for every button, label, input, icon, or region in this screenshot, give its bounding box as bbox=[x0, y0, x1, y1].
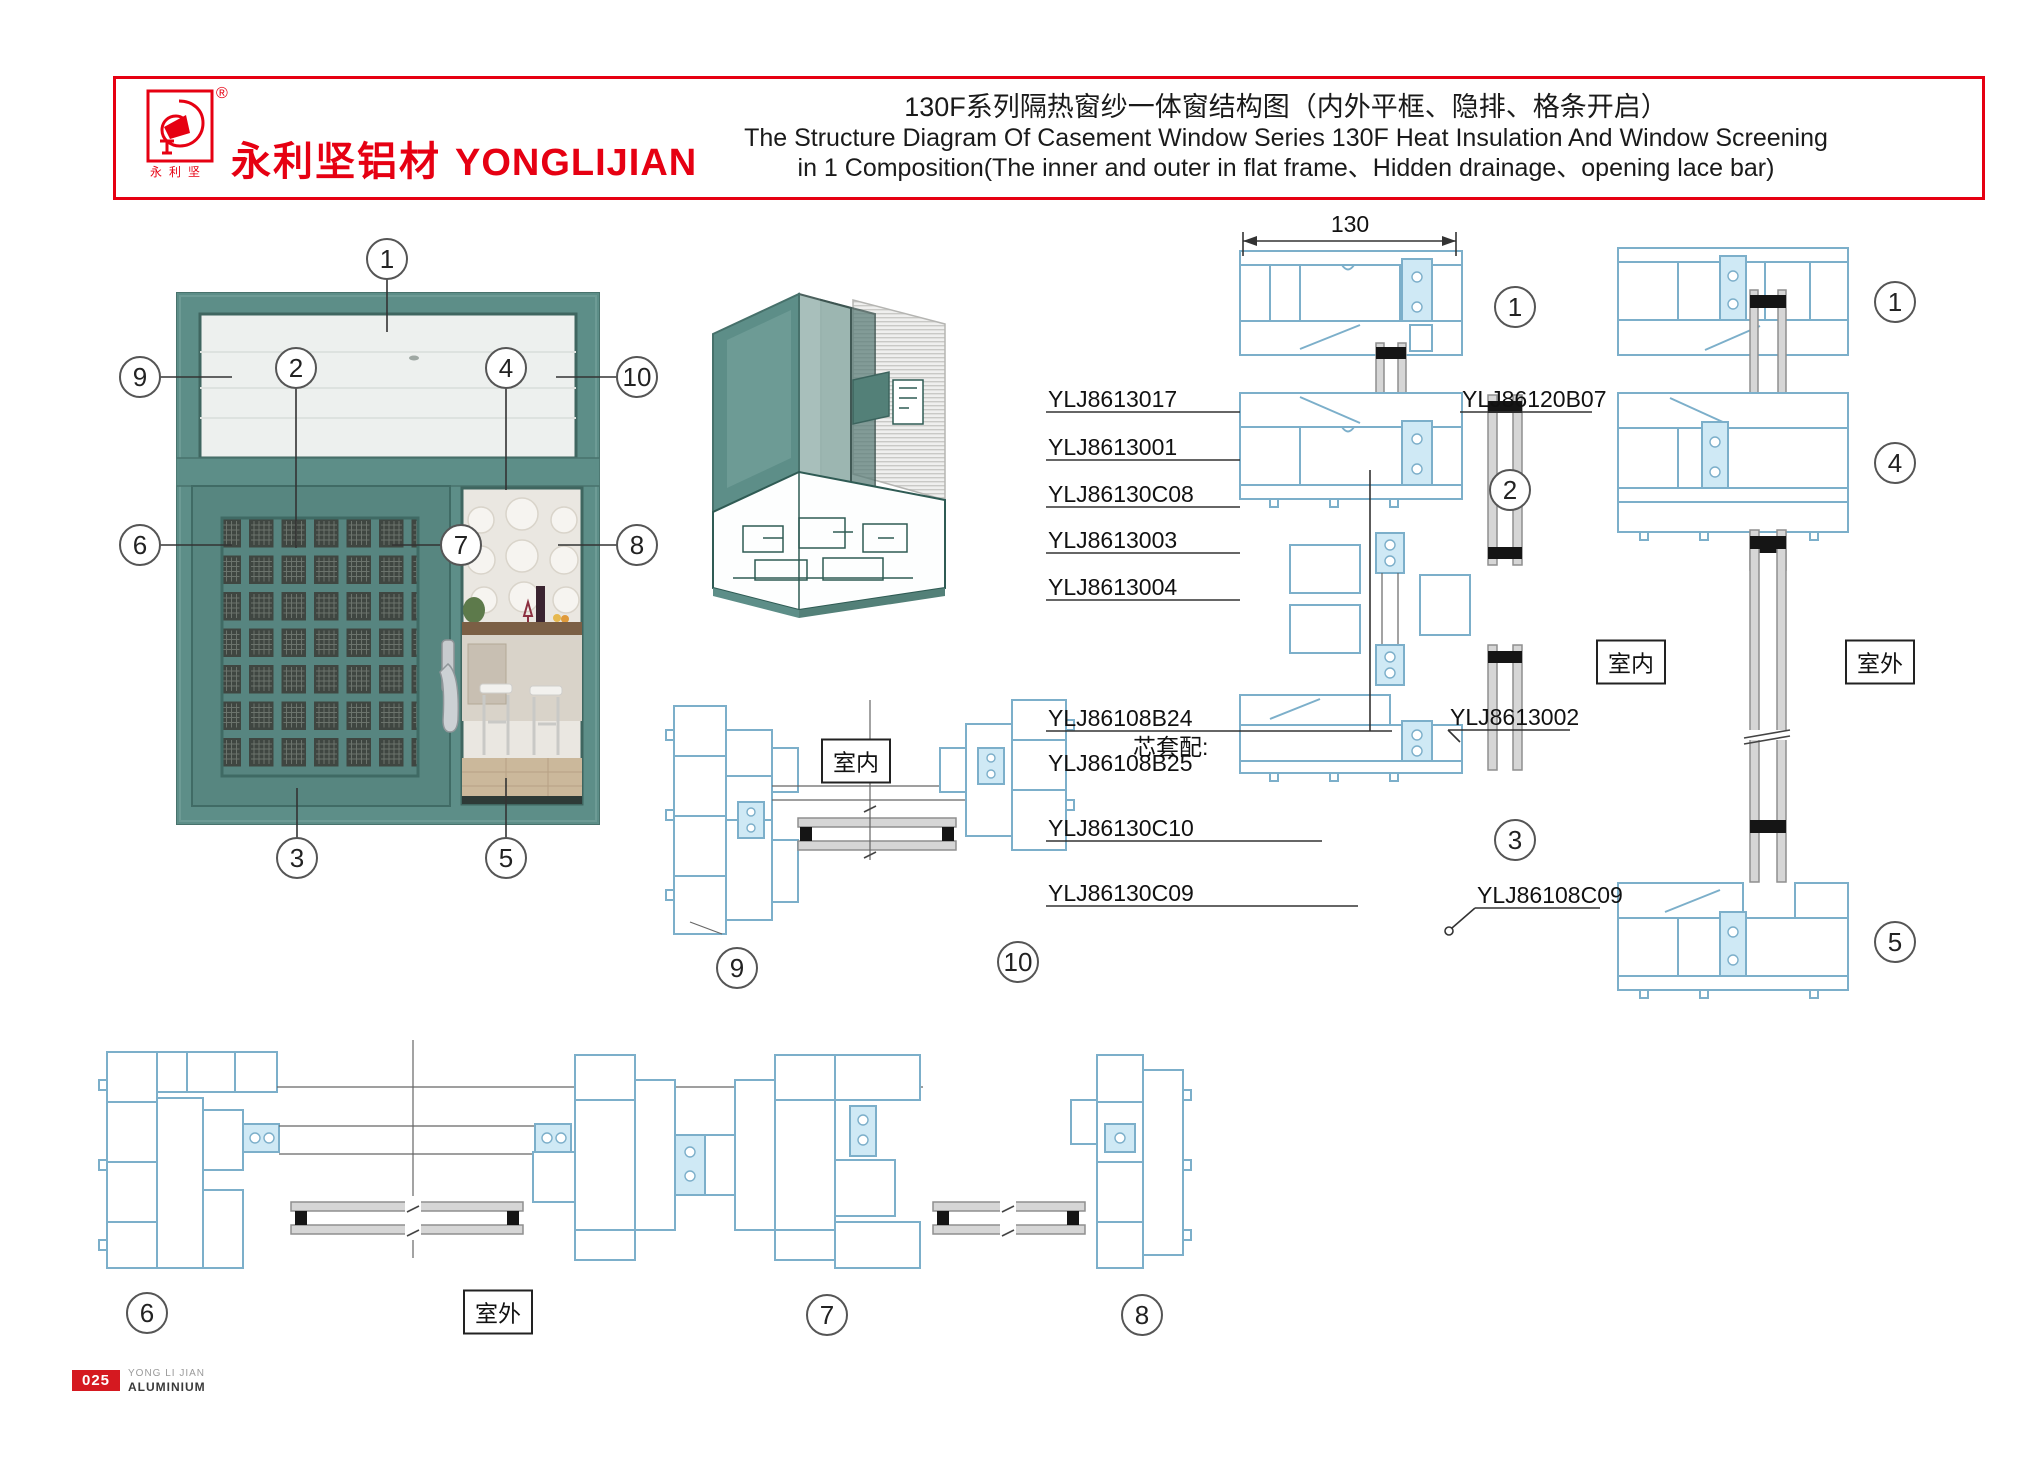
callout-section-3: 3 bbox=[1494, 819, 1536, 861]
part-label-ylj86120b07: YLJ86120B07 bbox=[1462, 386, 1607, 413]
part-label-ylj86108c09: YLJ86108C09 bbox=[1477, 882, 1623, 909]
callout-window-5: 5 bbox=[485, 837, 527, 879]
callout-window-2: 2 bbox=[275, 347, 317, 389]
callout-section-1-mid: 1 bbox=[1494, 286, 1536, 328]
callout-window-1: 1 bbox=[366, 238, 408, 280]
callout-number: 2 bbox=[289, 355, 303, 381]
callout-number: 6 bbox=[133, 532, 147, 558]
callout-window-10: 10 bbox=[616, 356, 658, 398]
room-label-indoor-right: 室内 bbox=[1596, 640, 1666, 685]
callout-section-10: 10 bbox=[997, 941, 1039, 983]
callout-section-5: 5 bbox=[1874, 921, 1916, 963]
callout-window-8: 8 bbox=[616, 524, 658, 566]
callout-window-4: 4 bbox=[485, 347, 527, 389]
callout-number: 10 bbox=[1004, 949, 1033, 975]
callout-number: 2 bbox=[1503, 477, 1517, 503]
callout-section-4: 4 bbox=[1874, 442, 1916, 484]
callout-number: 3 bbox=[1508, 827, 1522, 853]
callout-section-1-right: 1 bbox=[1874, 281, 1916, 323]
part-label-ylj86130c09: YLJ86130C09 bbox=[1048, 880, 1194, 907]
callout-number: 8 bbox=[630, 532, 644, 558]
callout-section-7: 7 bbox=[806, 1294, 848, 1336]
callout-window-7: 7 bbox=[440, 524, 482, 566]
dimension-130: 130 bbox=[1331, 211, 1369, 238]
page-number-badge: 025 bbox=[72, 1370, 120, 1391]
footer-brand: YONG LI JIAN ALUMINIUM bbox=[128, 1369, 206, 1393]
part-label-ylj86130c08: YLJ86130C08 bbox=[1048, 481, 1194, 508]
room-label-outdoor-right: 室外 bbox=[1845, 640, 1915, 685]
callout-number: 9 bbox=[730, 955, 744, 981]
callout-section-9: 9 bbox=[716, 947, 758, 989]
callout-number: 5 bbox=[499, 845, 513, 871]
callout-number: 9 bbox=[133, 364, 147, 390]
callout-section-6: 6 bbox=[126, 1292, 168, 1334]
part-label-ylj8613003: YLJ8613003 bbox=[1048, 527, 1177, 554]
room-label-indoor-center: 室内 bbox=[821, 739, 891, 784]
annotation-lines bbox=[0, 0, 2027, 1457]
callout-window-6: 6 bbox=[119, 524, 161, 566]
callout-number: 6 bbox=[140, 1300, 154, 1326]
callout-number: 7 bbox=[820, 1302, 834, 1328]
callout-number: 1 bbox=[1508, 294, 1522, 320]
callout-section-2: 2 bbox=[1489, 469, 1531, 511]
callout-section-8: 8 bbox=[1121, 1294, 1163, 1336]
callout-window-3: 3 bbox=[276, 837, 318, 879]
catalog-page: ® 永利坚 永利坚铝材 YONGLIJIAN 130F系列隔热窗纱一体窗结构图（… bbox=[0, 0, 2027, 1457]
callout-number: 1 bbox=[1888, 289, 1902, 315]
callout-number: 1 bbox=[380, 246, 394, 272]
callout-number: 4 bbox=[1888, 450, 1902, 476]
callout-number: 7 bbox=[454, 532, 468, 558]
footer-brand-aluminium: ALUMINIUM bbox=[128, 1381, 206, 1393]
callout-number: 3 bbox=[290, 845, 304, 871]
part-label-ylj8613002: YLJ8613002 bbox=[1450, 704, 1579, 731]
room-label-outdoor-bottom: 室外 bbox=[463, 1290, 533, 1335]
callout-number: 5 bbox=[1888, 929, 1902, 955]
callout-number: 4 bbox=[499, 355, 513, 381]
part-label-ylj86130c10: YLJ86130C10 bbox=[1048, 815, 1194, 842]
part-label-ylj8613004: YLJ8613004 bbox=[1048, 574, 1177, 601]
footer-brand-name: YONG LI JIAN bbox=[128, 1369, 206, 1379]
part-label-ylj86108b25: YLJ86108B25 bbox=[1048, 750, 1193, 777]
callout-number: 10 bbox=[623, 364, 652, 390]
callout-number: 8 bbox=[1135, 1302, 1149, 1328]
part-label-ylj8613017: YLJ8613017 bbox=[1048, 386, 1177, 413]
part-label-ylj8613001: YLJ8613001 bbox=[1048, 434, 1177, 461]
callout-window-9: 9 bbox=[119, 356, 161, 398]
